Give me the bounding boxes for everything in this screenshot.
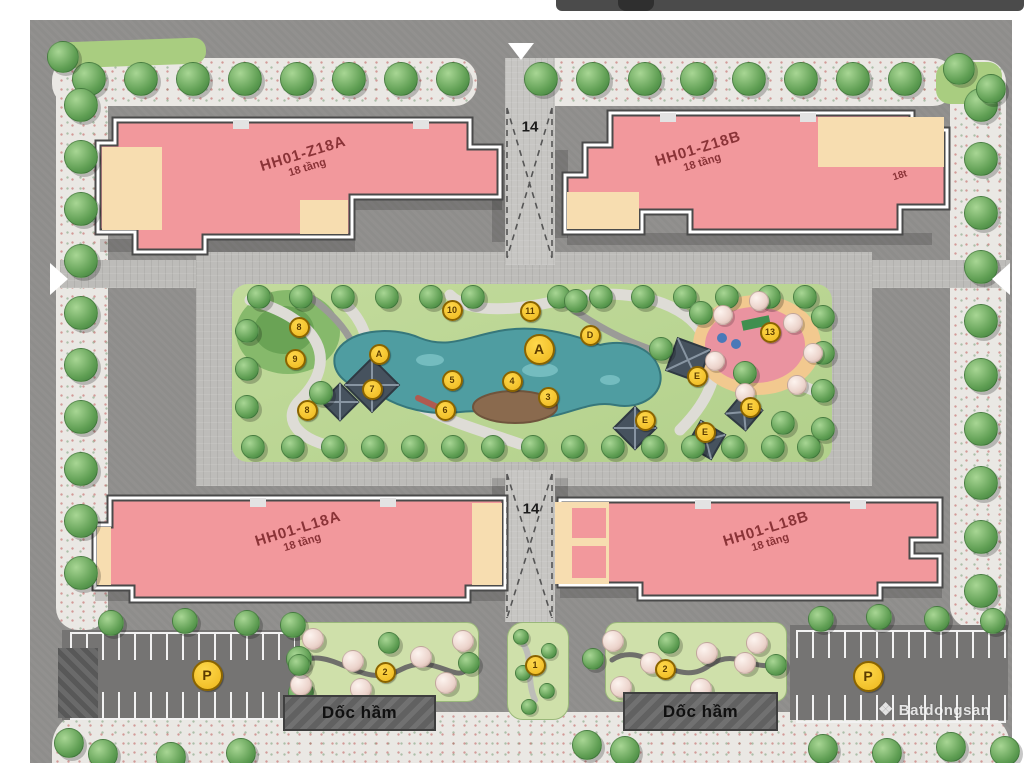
tree-icon	[783, 313, 803, 333]
tree-icon	[290, 674, 312, 696]
tree-icon	[54, 728, 84, 758]
tree-icon	[602, 630, 624, 652]
tree-icon	[924, 606, 950, 632]
park-marker: 13	[760, 322, 781, 343]
tree-icon	[564, 289, 588, 313]
tree-icon	[836, 62, 870, 96]
tree-icon	[964, 142, 998, 176]
tree-icon	[458, 652, 480, 674]
tree-icon	[247, 285, 271, 309]
tree-icon	[641, 435, 665, 459]
tree-icon	[235, 319, 259, 343]
tree-icon	[401, 435, 425, 459]
tree-icon	[64, 452, 98, 486]
zone-label-14-bottom: 14	[523, 501, 540, 518]
park-marker: A	[369, 344, 390, 365]
park-marker: 8	[289, 317, 310, 338]
garden-marker: 2	[375, 662, 396, 683]
tree-icon	[88, 739, 118, 763]
park-marker: E	[740, 397, 761, 418]
watermark-text: Batdongsan	[899, 702, 991, 719]
tree-icon	[64, 88, 98, 122]
tree-icon	[436, 62, 470, 96]
tree-icon	[332, 62, 366, 96]
tree-icon	[808, 606, 834, 632]
tree-icon	[64, 400, 98, 434]
tree-icon	[64, 296, 98, 330]
tree-icon	[288, 654, 310, 676]
tree-icon	[64, 556, 98, 590]
tree-icon	[378, 632, 400, 654]
top-ui-bar-knob	[618, 0, 654, 11]
tree-icon	[732, 62, 766, 96]
tree-icon	[64, 140, 98, 174]
tree-icon	[980, 608, 1006, 634]
tree-icon	[888, 62, 922, 96]
tree-icon	[811, 417, 835, 441]
tree-icon	[124, 62, 158, 96]
tree-icon	[521, 699, 537, 715]
tree-icon	[964, 520, 998, 554]
tree-icon	[572, 730, 602, 760]
tree-icon	[649, 337, 673, 361]
tree-icon	[964, 358, 998, 392]
tree-icon	[936, 732, 966, 762]
tree-icon	[943, 53, 975, 85]
tree-icon	[228, 62, 262, 96]
park-marker: 10	[442, 300, 463, 321]
tree-icon	[658, 632, 680, 654]
tree-icon	[539, 683, 555, 699]
park-marker: 11	[520, 301, 541, 322]
tree-icon	[872, 738, 902, 763]
tree-icon	[589, 285, 613, 309]
tree-icon	[784, 62, 818, 96]
tree-icon	[601, 435, 625, 459]
park-marker: 3	[538, 387, 559, 408]
screenshot-stage: 89A781011DA543613EEEE212PP Dốc hầm Dốc h…	[0, 0, 1024, 763]
park-marker: E	[687, 366, 708, 387]
tree-icon	[241, 435, 265, 459]
garden-marker: 1	[525, 655, 546, 676]
tree-icon	[765, 654, 787, 676]
tree-icon	[746, 632, 768, 654]
tree-icon	[749, 291, 769, 311]
parking-marker: P	[192, 660, 223, 691]
tree-icon	[811, 305, 835, 329]
tree-icon	[435, 672, 457, 694]
tree-icon	[235, 357, 259, 381]
tree-icon	[176, 62, 210, 96]
entrance-arrow-right-icon	[50, 263, 68, 295]
tree-icon	[452, 630, 474, 652]
garden-marker: 2	[655, 659, 676, 680]
tree-icon	[680, 62, 714, 96]
tree-icon	[281, 435, 305, 459]
tree-icon	[234, 610, 260, 636]
ramp-label: Dốc hầm	[322, 703, 397, 723]
park-marker: 5	[442, 370, 463, 391]
tree-icon	[582, 648, 604, 670]
tree-icon	[734, 652, 756, 674]
tree-icon	[280, 62, 314, 96]
tree-icon	[64, 504, 98, 538]
tree-icon	[384, 62, 418, 96]
tree-icon	[541, 643, 557, 659]
watermark: ❖ Batdongsan	[878, 700, 990, 720]
parking-stalls-right-top[interactable]	[796, 630, 1006, 658]
tree-icon	[461, 285, 485, 309]
basement-ramp-left[interactable]: Dốc hầm	[283, 695, 436, 731]
parking-stalls-left-bottom[interactable]	[70, 692, 295, 720]
park-marker: A	[524, 334, 555, 365]
tree-icon	[172, 608, 198, 634]
zone-label-14-top: 14	[522, 119, 539, 136]
entrance-arrow-left-icon	[992, 263, 1010, 295]
tree-icon	[321, 435, 345, 459]
tree-icon	[47, 41, 79, 73]
tree-icon	[964, 574, 998, 608]
tree-icon	[302, 628, 324, 650]
tree-icon	[713, 305, 733, 325]
tree-icon	[964, 412, 998, 446]
tree-icon	[628, 62, 662, 96]
park-marker: 8	[297, 400, 318, 421]
tree-icon	[631, 285, 655, 309]
tree-icon	[521, 435, 545, 459]
tree-icon	[419, 285, 443, 309]
tree-icon	[721, 435, 745, 459]
tree-icon	[808, 734, 838, 763]
tree-icon	[561, 435, 585, 459]
parking-marker: P	[853, 661, 884, 692]
tree-icon	[410, 646, 432, 668]
tree-icon	[990, 736, 1020, 763]
tree-icon	[513, 629, 529, 645]
tree-icon	[524, 62, 558, 96]
watermark-logo-icon: ❖	[878, 700, 894, 720]
tree-icon	[811, 379, 835, 403]
tree-icon	[761, 435, 785, 459]
tree-icon	[342, 650, 364, 672]
park-marker: E	[695, 422, 716, 443]
tree-icon	[803, 343, 823, 363]
tree-icon	[64, 244, 98, 278]
tree-icon	[361, 435, 385, 459]
park-marker: 6	[435, 400, 456, 421]
parking-stalls-left-top[interactable]	[70, 632, 295, 660]
entrance-arrow-down-icon	[508, 43, 534, 60]
tree-icon	[331, 285, 355, 309]
park-marker: 4	[502, 371, 523, 392]
tree-icon	[976, 74, 1006, 104]
park-marker: E	[635, 410, 656, 431]
tree-icon	[235, 395, 259, 419]
ramp-label: Dốc hầm	[663, 702, 738, 722]
tree-icon	[964, 304, 998, 338]
tree-icon	[610, 736, 640, 763]
tree-icon	[98, 610, 124, 636]
tree-icon	[964, 196, 998, 230]
tree-icon	[696, 642, 718, 664]
tree-icon	[64, 192, 98, 226]
tree-icon	[705, 351, 725, 371]
park-marker: D	[580, 325, 601, 346]
tree-icon	[964, 466, 998, 500]
tree-icon	[771, 411, 795, 435]
tree-icon	[375, 285, 399, 309]
tree-icon	[689, 301, 713, 325]
parking-hatch-left	[58, 648, 98, 718]
basement-ramp-right[interactable]: Dốc hầm	[623, 692, 778, 731]
tree-icon	[289, 285, 313, 309]
tree-icon	[226, 738, 256, 763]
tree-icon	[793, 285, 817, 309]
tree-icon	[787, 375, 807, 395]
tree-icon	[866, 604, 892, 630]
park-marker: 7	[362, 379, 383, 400]
tree-icon	[481, 435, 505, 459]
park-marker: 9	[285, 349, 306, 370]
tree-icon	[441, 435, 465, 459]
tree-icon	[733, 361, 757, 385]
zone14-strip-bottom	[505, 470, 555, 622]
tree-icon	[64, 348, 98, 382]
tree-icon	[576, 62, 610, 96]
